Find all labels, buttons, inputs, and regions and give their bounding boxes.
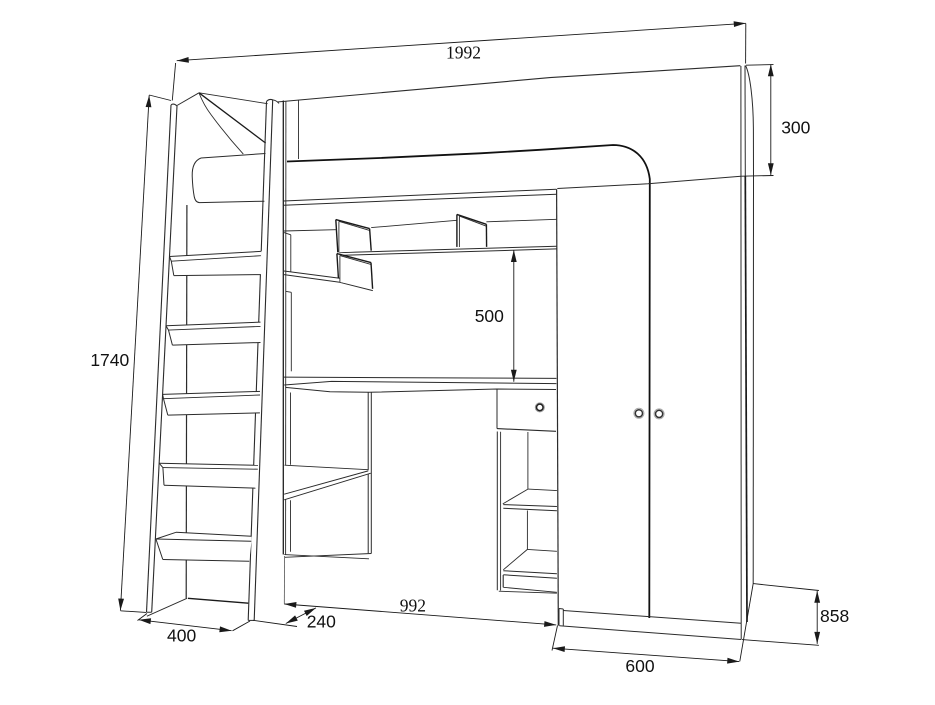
svg-text:1992: 1992	[446, 43, 481, 63]
svg-text:600: 600	[625, 656, 654, 676]
svg-text:1740: 1740	[90, 350, 129, 370]
svg-text:992: 992	[400, 595, 426, 615]
svg-text:300: 300	[781, 117, 810, 137]
svg-text:400: 400	[167, 625, 196, 645]
svg-text:240: 240	[307, 611, 336, 631]
svg-text:500: 500	[475, 306, 504, 326]
svg-text:858: 858	[820, 606, 849, 626]
